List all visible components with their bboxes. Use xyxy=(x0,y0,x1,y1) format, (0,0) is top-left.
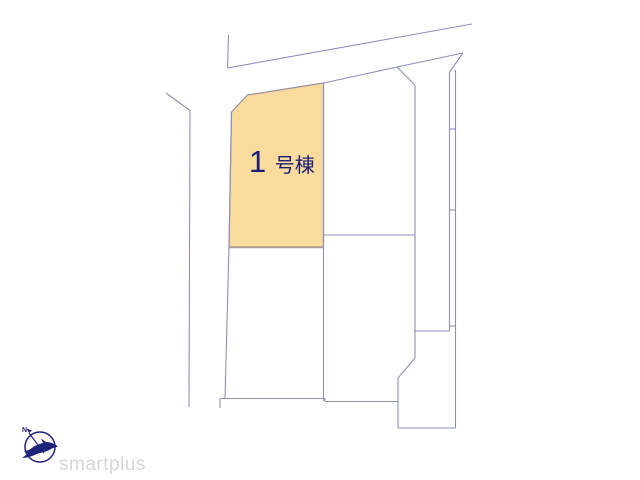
road-edge-top xyxy=(228,24,473,68)
lot-2-corner-cut xyxy=(397,67,415,85)
lot-1: 1 号棟 xyxy=(229,83,324,248)
compass-label: N xyxy=(22,427,27,434)
site-plan-svg: 1 号棟 xyxy=(0,0,640,480)
plat-left-edge xyxy=(225,112,232,398)
road-edge-left xyxy=(166,93,190,407)
lot-1-label-suffix: 号棟 xyxy=(275,154,315,177)
upper-boundary-line xyxy=(324,53,464,83)
compass-needle-tip xyxy=(27,429,33,434)
logo: N smartplus xyxy=(22,427,146,475)
logo-text: smartplus xyxy=(59,454,146,475)
inner-road-left-edge xyxy=(398,85,415,428)
plat-bottom-edge xyxy=(220,399,398,402)
site-plan-page: 1 号棟 xyxy=(0,0,640,480)
lot-1-label-number: 1 xyxy=(249,144,266,179)
